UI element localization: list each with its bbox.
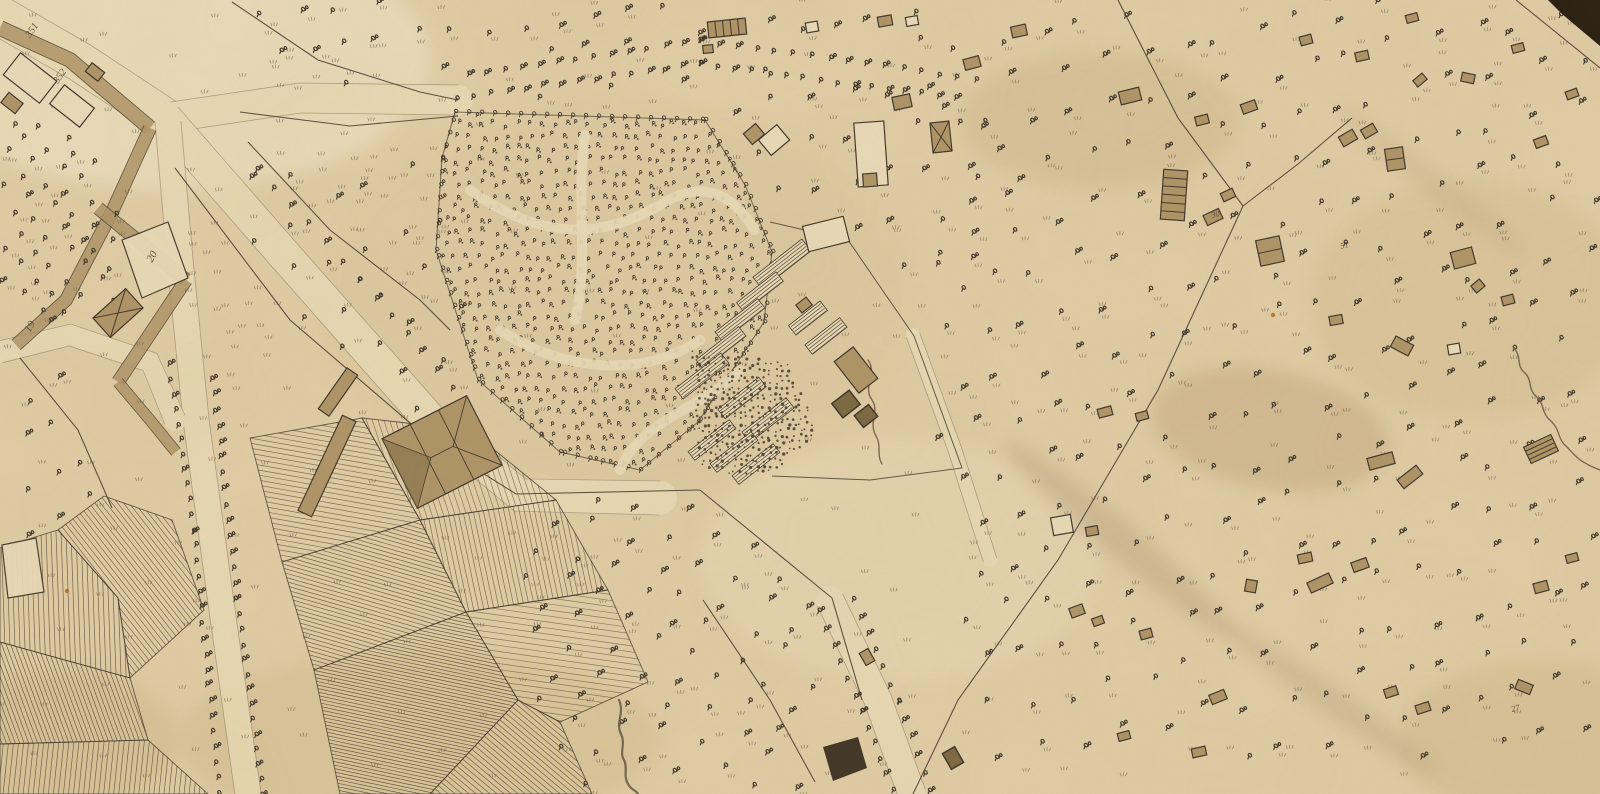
historical-map: 3513522019305127	[0, 0, 1600, 794]
map-viewport: 3513522019305127	[0, 0, 1600, 794]
paper-texture	[0, 0, 1600, 794]
